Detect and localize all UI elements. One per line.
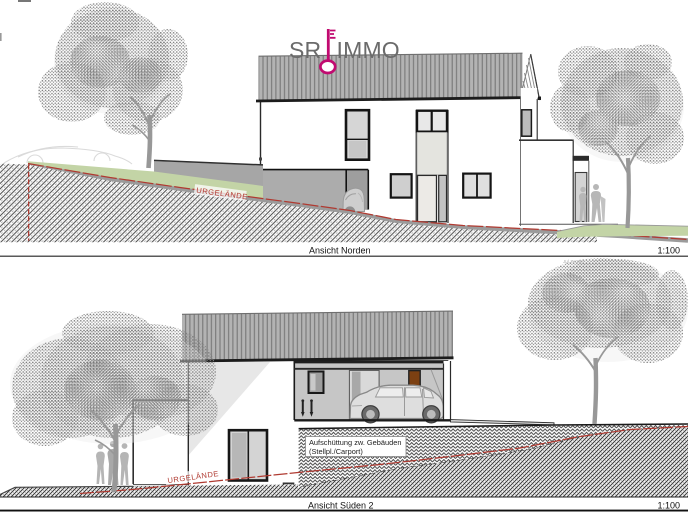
svg-text:Jul.Zerwer: Jul.Zerwer xyxy=(562,259,585,264)
svg-text:(Stellpl./Carport): (Stellpl./Carport) xyxy=(309,447,363,456)
svg-text:1:100: 1:100 xyxy=(657,501,680,511)
svg-text:1:100: 1:100 xyxy=(657,246,680,256)
svg-text:Ansicht Süden 2: Ansicht Süden 2 xyxy=(308,501,374,511)
svg-text:SR: SR xyxy=(289,37,321,63)
svg-text:IMMO: IMMO xyxy=(337,37,400,63)
svg-text:Aufschüttung zw. Gebäuden: Aufschüttung zw. Gebäuden xyxy=(309,438,401,447)
svg-text:Ansicht Norden: Ansicht Norden xyxy=(309,246,371,256)
